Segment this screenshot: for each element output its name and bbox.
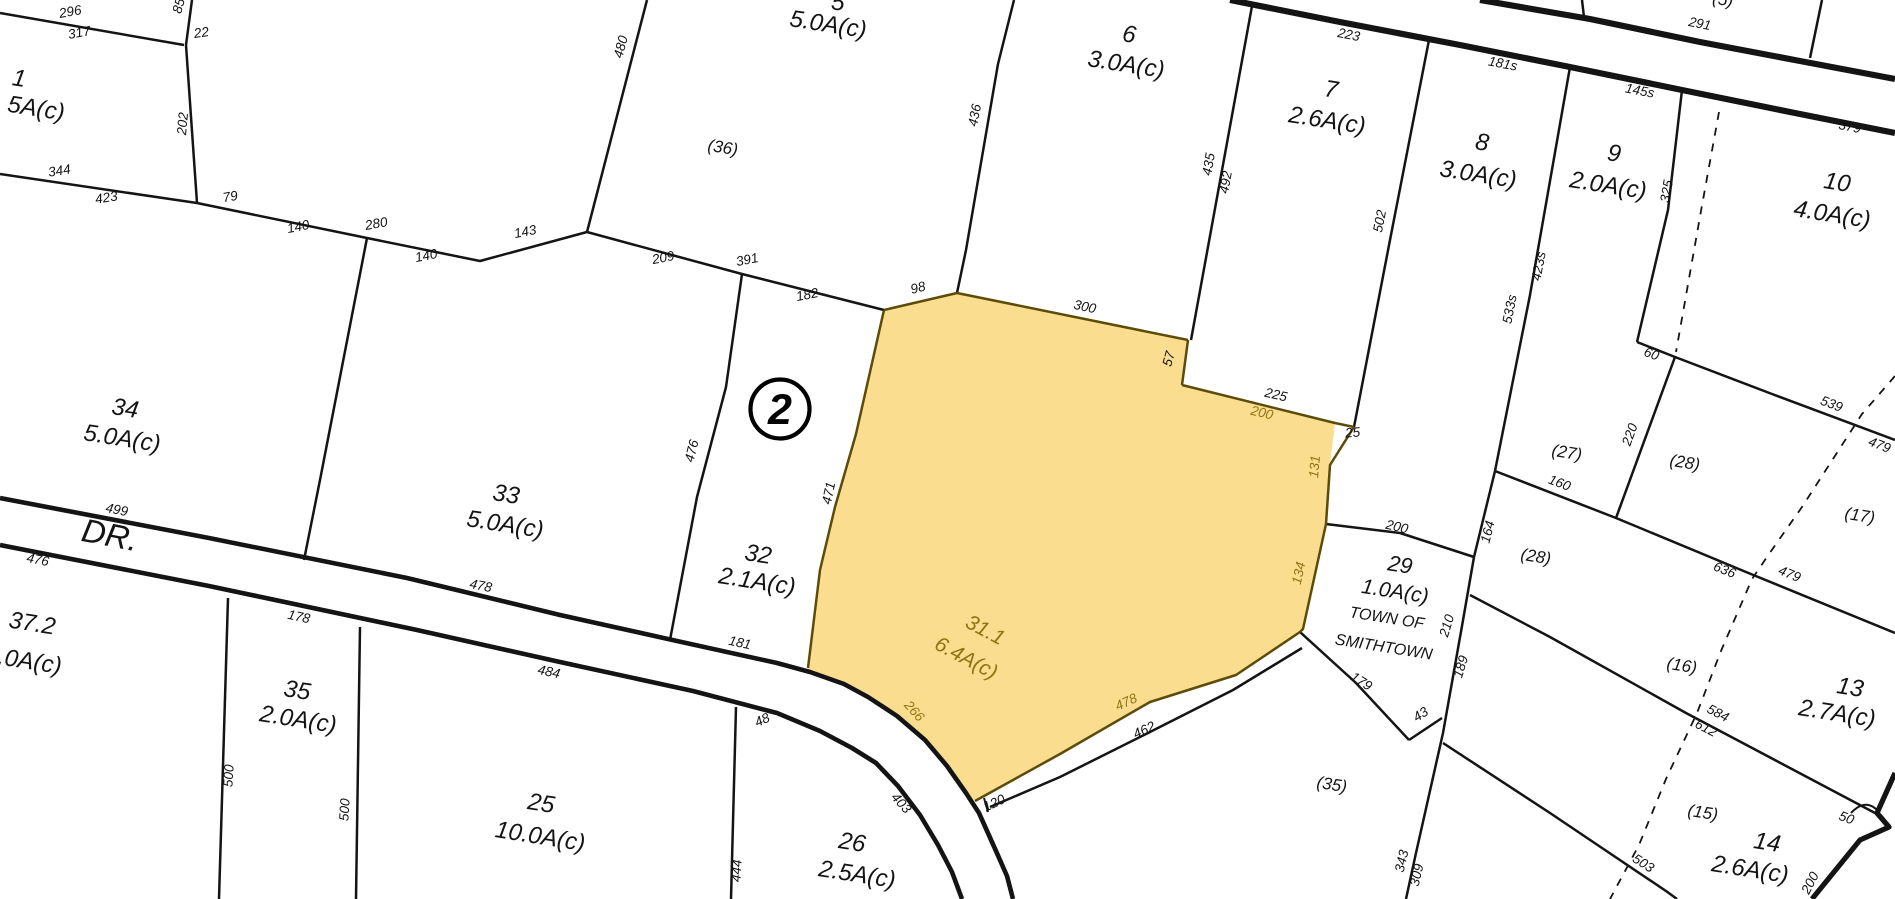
svg-text:202: 202	[174, 111, 191, 136]
svg-text:79: 79	[222, 188, 240, 205]
svg-text:13: 13	[1835, 672, 1866, 703]
svg-text:33: 33	[491, 479, 522, 510]
svg-text:10: 10	[1822, 167, 1853, 198]
svg-text:32: 32	[743, 539, 774, 570]
svg-text:26: 26	[836, 827, 868, 858]
svg-text:22: 22	[192, 24, 210, 41]
svg-text:29: 29	[1385, 550, 1414, 579]
svg-text:34: 34	[110, 393, 141, 424]
svg-text:444: 444	[728, 859, 744, 882]
svg-text:35: 35	[282, 675, 313, 706]
svg-text:500: 500	[220, 764, 236, 788]
svg-text:25: 25	[1343, 424, 1361, 440]
svg-text:131: 131	[1306, 455, 1323, 479]
svg-text:14: 14	[1752, 827, 1783, 858]
svg-text:25: 25	[525, 788, 557, 819]
svg-text:2: 2	[767, 386, 792, 434]
svg-text:500: 500	[336, 798, 352, 822]
